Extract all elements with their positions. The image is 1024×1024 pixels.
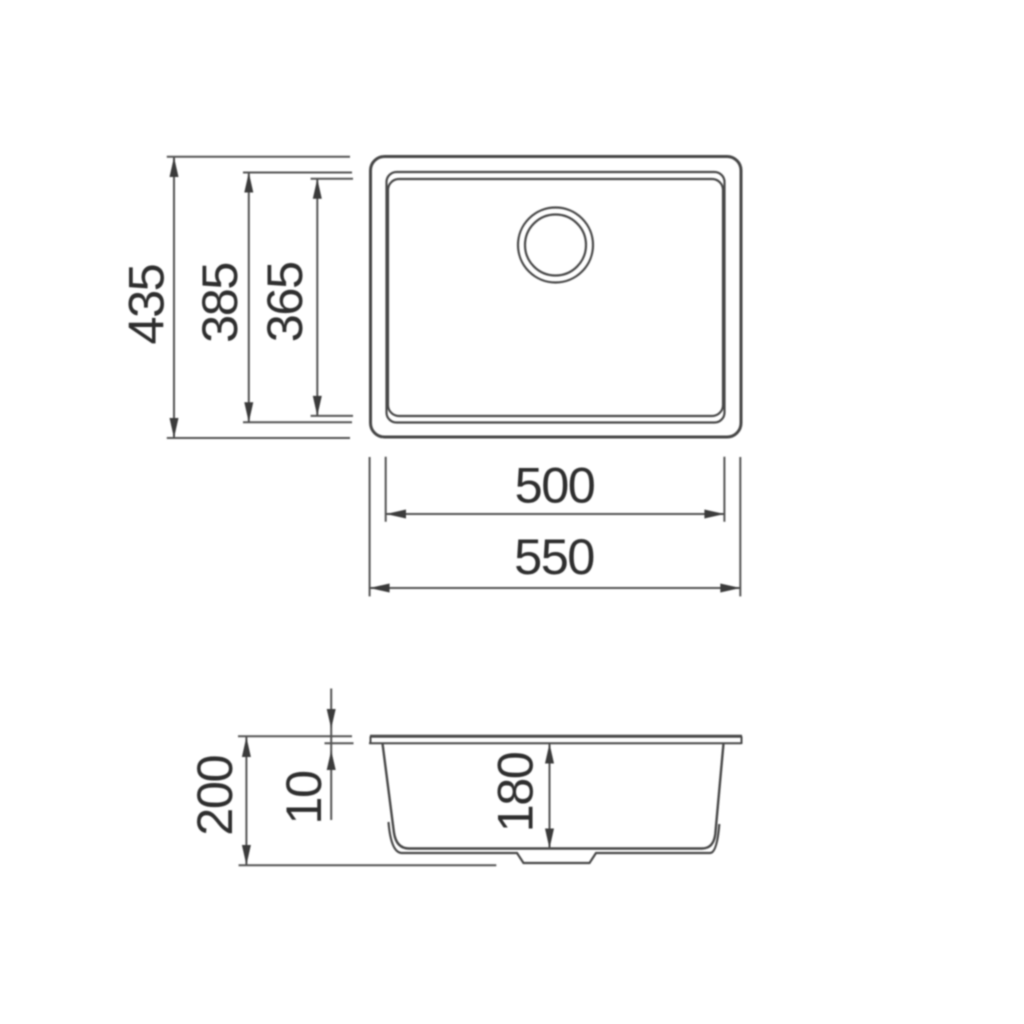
svg-text:550: 550 [514, 528, 594, 585]
svg-text:435: 435 [118, 265, 175, 345]
svg-text:10: 10 [275, 771, 332, 825]
svg-text:365: 365 [256, 262, 313, 342]
svg-text:180: 180 [487, 752, 544, 832]
svg-text:500: 500 [515, 457, 595, 514]
svg-text:385: 385 [191, 263, 248, 343]
svg-text:200: 200 [186, 756, 243, 836]
